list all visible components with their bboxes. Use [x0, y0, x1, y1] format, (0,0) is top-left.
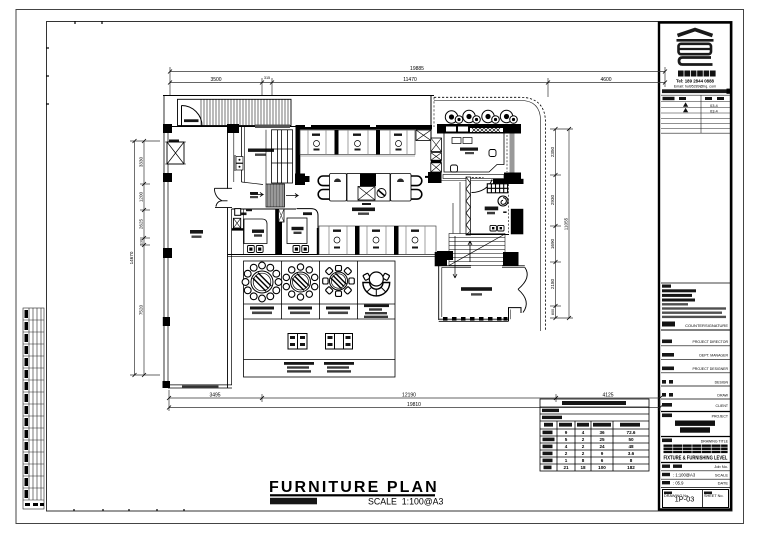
- svg-text:11055: 11055: [564, 217, 569, 230]
- svg-text:1P-03: 1P-03: [675, 495, 695, 504]
- svg-text:9: 9: [565, 430, 568, 435]
- svg-text:Tel: 189 2844 0888: Tel: 189 2844 0888: [676, 79, 715, 84]
- svg-text:19810: 19810: [407, 402, 421, 408]
- svg-text:2350: 2350: [550, 146, 555, 157]
- svg-text:3330: 3330: [139, 156, 144, 167]
- svg-text:11470: 11470: [403, 77, 417, 83]
- svg-text:50: 50: [628, 437, 634, 442]
- svg-text:315: 315: [264, 76, 270, 80]
- svg-text:COUNTERSIGNATURE: COUNTERSIGNATURE: [685, 323, 728, 328]
- svg-text:4125: 4125: [602, 393, 613, 399]
- svg-text:2625: 2625: [139, 218, 144, 229]
- svg-text:800: 800: [551, 309, 555, 315]
- svg-text:182: 182: [627, 465, 635, 470]
- svg-text:PROJECT DIRECTOR: PROJECT DIRECTOR: [693, 340, 729, 344]
- svg-text:3.6: 3.6: [628, 451, 635, 456]
- svg-text:3500: 3500: [210, 77, 221, 83]
- svg-text:8: 8: [630, 458, 633, 463]
- svg-text:SCALE 1:100@A3: SCALE 1:100@A3: [368, 497, 444, 507]
- svg-text:24: 24: [599, 444, 605, 449]
- svg-text:2: 2: [582, 437, 585, 442]
- svg-text:3495: 3495: [209, 393, 220, 399]
- svg-text:4600: 4600: [600, 77, 611, 83]
- svg-text:18: 18: [580, 465, 586, 470]
- svg-text:72.6: 72.6: [627, 430, 636, 435]
- svg-text:2180: 2180: [550, 278, 555, 289]
- svg-text:9: 9: [601, 451, 604, 456]
- svg-text:130: 130: [140, 239, 144, 245]
- svg-text:: 05.9: : 05.9: [673, 481, 684, 486]
- svg-text:Email: hui95289@hq. com: Email: hui95289@hq. com: [674, 85, 716, 89]
- svg-text:4: 4: [582, 430, 585, 435]
- svg-text:4: 4: [565, 444, 568, 449]
- svg-text:7520: 7520: [139, 304, 144, 315]
- svg-text:36: 36: [599, 430, 605, 435]
- svg-text:48: 48: [628, 444, 634, 449]
- svg-text:2: 2: [582, 451, 585, 456]
- svg-text:DATE: DATE: [718, 481, 729, 486]
- svg-text:Job No.: Job No.: [714, 464, 728, 469]
- svg-text:FURNITURE PLAN: FURNITURE PLAN: [269, 479, 439, 496]
- svg-text:12190: 12190: [402, 393, 416, 399]
- svg-text:21: 21: [563, 465, 569, 470]
- svg-text:19885: 19885: [410, 66, 424, 72]
- svg-text:1200: 1200: [139, 191, 144, 202]
- svg-text:DESIGN: DESIGN: [715, 381, 729, 385]
- svg-text:PROJECT DESIGNER: PROJECT DESIGNER: [692, 367, 728, 371]
- svg-text:2: 2: [582, 444, 585, 449]
- svg-text:1690: 1690: [550, 238, 555, 249]
- svg-text:: 1:100@A3: : 1:100@A3: [673, 472, 696, 477]
- svg-text:1: 1: [565, 458, 568, 463]
- svg-text:DRAWING TITLE: DRAWING TITLE: [701, 440, 729, 444]
- svg-text:FIXTURE & FURNISHING LEVEL: FIXTURE & FURNISHING LEVEL: [664, 455, 728, 461]
- svg-text:5: 5: [565, 437, 568, 442]
- svg-text:SCALE: SCALE: [715, 472, 728, 477]
- svg-text:PROJECT: PROJECT: [712, 415, 729, 419]
- svg-text:14670: 14670: [129, 251, 134, 264]
- svg-text:100: 100: [598, 465, 606, 470]
- svg-text:CLIENT: CLIENT: [716, 404, 729, 408]
- svg-text:2930: 2930: [550, 194, 555, 205]
- svg-text:6: 6: [601, 458, 604, 463]
- svg-text:03.4: 03.4: [710, 108, 719, 113]
- svg-text:SHEET No.: SHEET No.: [704, 494, 724, 498]
- svg-text:25: 25: [599, 437, 605, 442]
- svg-text:2: 2: [565, 451, 568, 456]
- svg-text:03.4: 03.4: [710, 103, 719, 108]
- svg-text:8: 8: [582, 458, 585, 463]
- svg-text:DEPT. MANAGER: DEPT. MANAGER: [699, 354, 728, 358]
